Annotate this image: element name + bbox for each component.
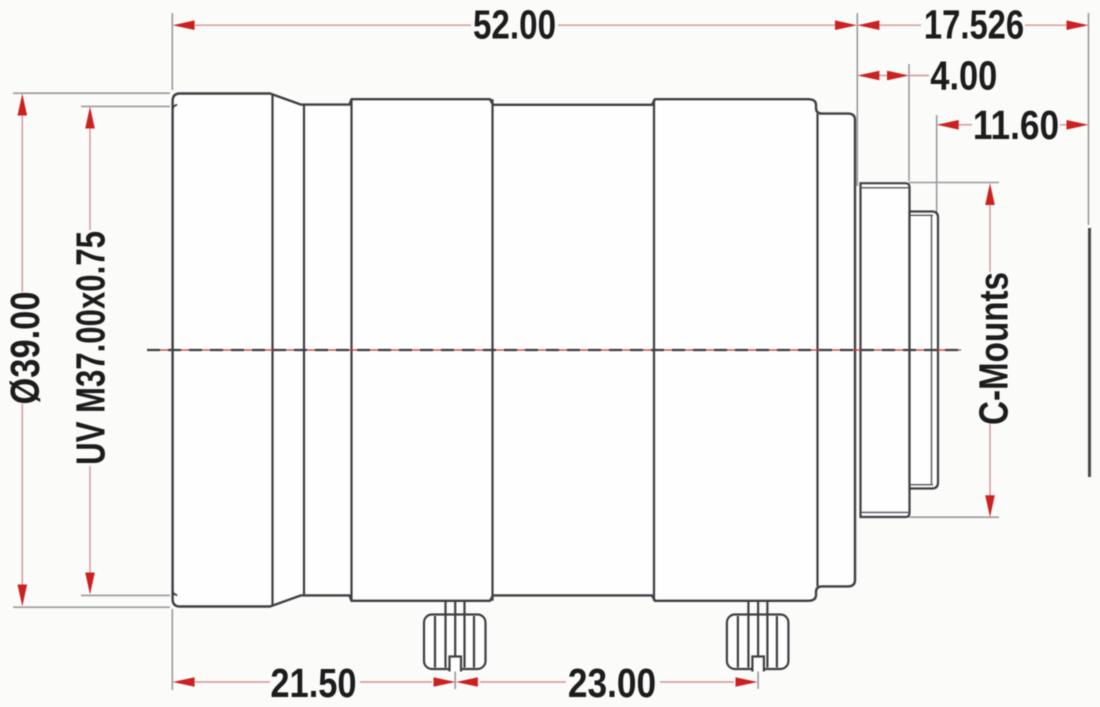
svg-text:11.60: 11.60 — [973, 103, 1059, 149]
svg-text:Ø39.00: Ø39.00 — [3, 292, 48, 405]
svg-text:21.50: 21.50 — [270, 661, 356, 706]
svg-text:UV M37.00x0.75: UV M37.00x0.75 — [67, 231, 113, 465]
svg-text:23.00: 23.00 — [568, 661, 656, 707]
svg-text:C-Mounts: C-Mounts — [970, 272, 1016, 425]
svg-text:17.526: 17.526 — [924, 1, 1024, 47]
svg-text:4.00: 4.00 — [930, 54, 997, 99]
svg-text:52.00: 52.00 — [473, 1, 556, 47]
